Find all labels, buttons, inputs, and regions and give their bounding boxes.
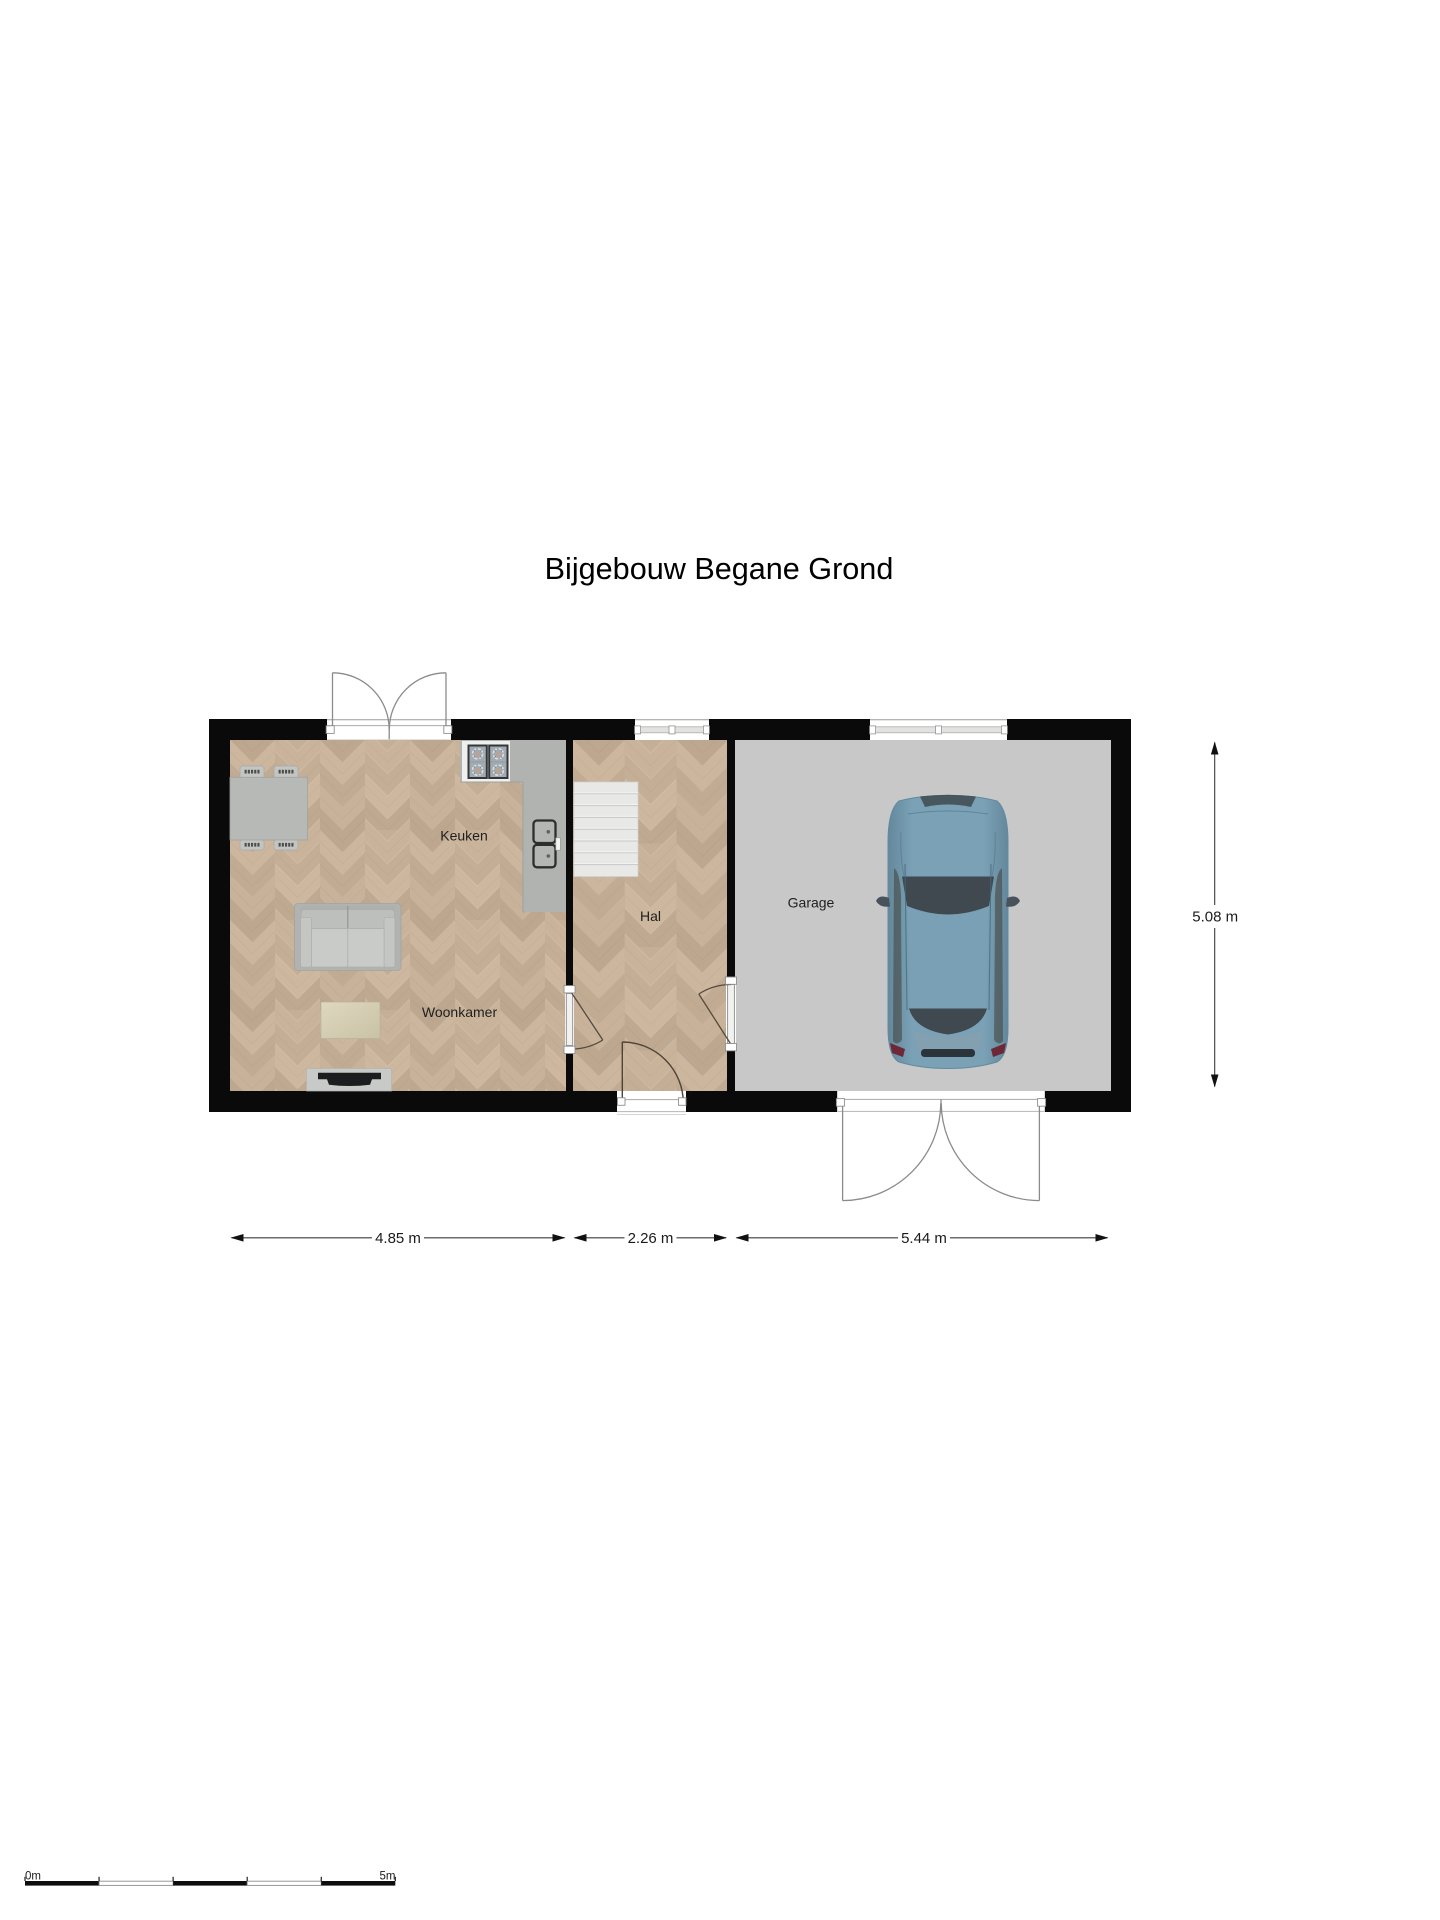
svg-text:2.26 m: 2.26 m xyxy=(628,1230,674,1247)
svg-text:0m: 0m xyxy=(25,1871,41,1883)
svg-text:5.44 m: 5.44 m xyxy=(901,1230,947,1247)
svg-text:Woonkamer: Woonkamer xyxy=(422,1004,498,1020)
svg-text:Keuken: Keuken xyxy=(440,828,487,844)
svg-text:Bijgebouw Begane Grond: Bijgebouw Begane Grond xyxy=(545,552,894,586)
svg-text:5m: 5m xyxy=(380,1871,396,1883)
svg-text:Garage: Garage xyxy=(788,894,835,910)
svg-text:5.08 m: 5.08 m xyxy=(1192,909,1238,926)
svg-text:4.85 m: 4.85 m xyxy=(375,1230,421,1247)
svg-text:Hal: Hal xyxy=(640,908,661,924)
